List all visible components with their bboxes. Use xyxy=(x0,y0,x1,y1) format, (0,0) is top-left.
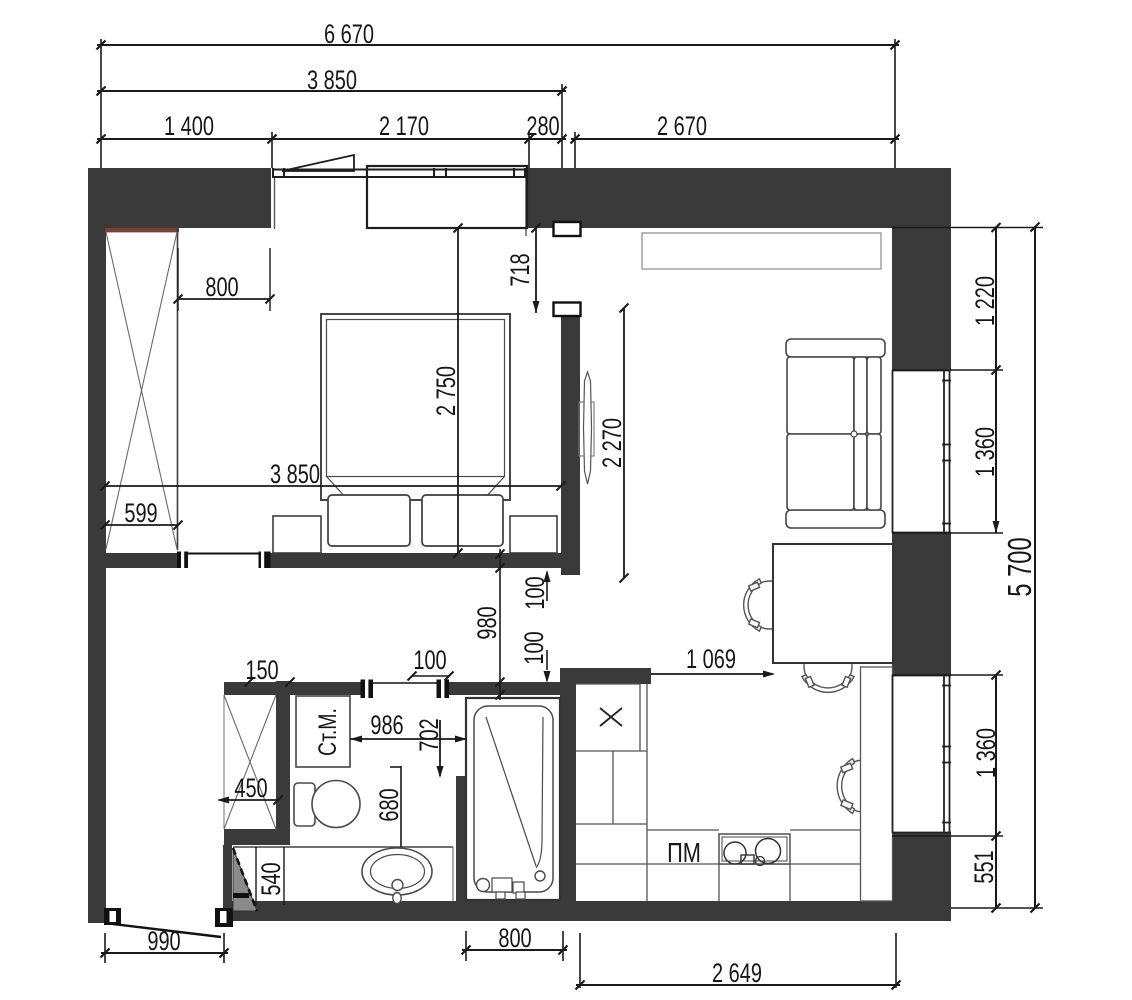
svg-text:1 360: 1 360 xyxy=(971,728,1002,778)
svg-text:1 069: 1 069 xyxy=(686,644,736,675)
svg-text:980: 980 xyxy=(472,606,503,639)
svg-text:599: 599 xyxy=(124,498,157,529)
svg-text:986: 986 xyxy=(370,710,403,741)
svg-text:100: 100 xyxy=(519,631,550,664)
svg-text:3 850: 3 850 xyxy=(307,65,357,96)
svg-text:1 220: 1 220 xyxy=(970,276,1001,326)
svg-text:2 670: 2 670 xyxy=(657,111,707,142)
svg-text:540: 540 xyxy=(256,862,287,895)
svg-text:100: 100 xyxy=(413,645,446,676)
svg-text:702: 702 xyxy=(414,718,445,751)
svg-text:2 270: 2 270 xyxy=(597,418,628,468)
svg-text:280: 280 xyxy=(526,111,559,142)
svg-text:680: 680 xyxy=(374,788,405,821)
svg-text:718: 718 xyxy=(505,253,536,286)
svg-text:100: 100 xyxy=(520,576,551,609)
svg-text:ПМ: ПМ xyxy=(667,837,701,868)
svg-text:2 170: 2 170 xyxy=(379,111,429,142)
svg-text:2 649: 2 649 xyxy=(712,958,762,989)
svg-text:5 700: 5 700 xyxy=(1002,537,1039,596)
svg-text:450: 450 xyxy=(234,773,267,804)
svg-text:551: 551 xyxy=(969,850,1000,883)
svg-text:3 850: 3 850 xyxy=(270,459,320,490)
svg-text:800: 800 xyxy=(205,272,238,303)
svg-text:990: 990 xyxy=(147,926,180,957)
svg-text:1 360: 1 360 xyxy=(970,427,1001,477)
svg-text:1 400: 1 400 xyxy=(164,111,214,142)
svg-text:6 670: 6 670 xyxy=(324,19,374,50)
svg-text:800: 800 xyxy=(498,923,531,954)
svg-text:2 750: 2 750 xyxy=(431,366,462,416)
svg-text:Ст.М.: Ст.М. xyxy=(314,708,342,756)
svg-text:150: 150 xyxy=(245,655,278,686)
